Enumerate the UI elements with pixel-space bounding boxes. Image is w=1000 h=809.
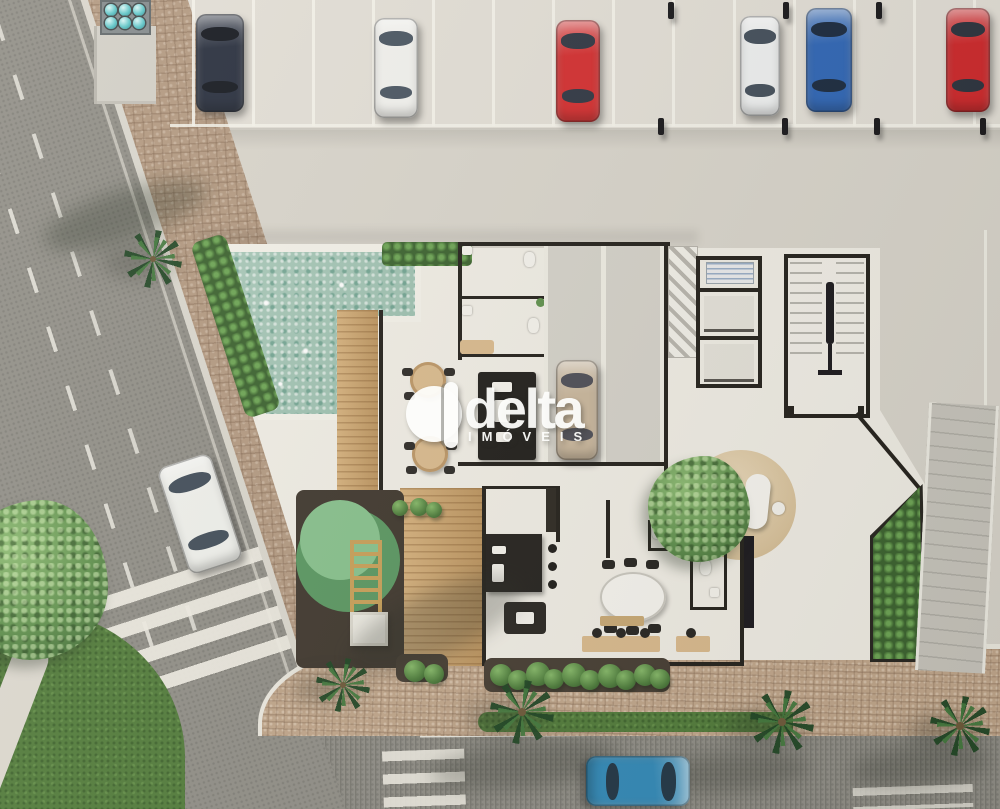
watermark-logo-bar <box>444 382 458 448</box>
watermark: delta IMÓVEIS <box>0 0 1000 809</box>
watermark-subtitle: IMÓVEIS <box>468 430 592 443</box>
aerial-floorplan-render: delta IMÓVEIS <box>0 0 1000 809</box>
